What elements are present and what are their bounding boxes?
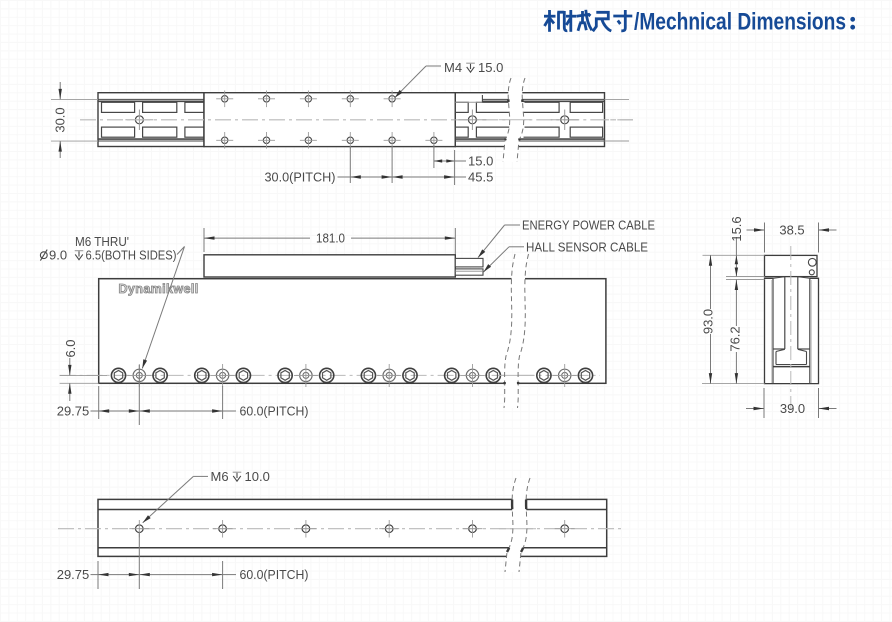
- svg-text:15.6: 15.6: [729, 216, 744, 241]
- svg-text:6.0: 6.0: [63, 339, 78, 357]
- svg-text:ENERGY POWER CABLE: ENERGY POWER CABLE: [522, 218, 655, 233]
- svg-text:39.0: 39.0: [780, 401, 805, 416]
- svg-text:93.0: 93.0: [701, 309, 716, 334]
- svg-text:38.5: 38.5: [779, 223, 804, 238]
- svg-text:30.0(PITCH): 30.0(PITCH): [265, 170, 336, 185]
- svg-text:/Mechnical Dimensions: /Mechnical Dimensions: [634, 9, 846, 36]
- svg-text:M4: M4: [444, 60, 462, 75]
- svg-text:181.0: 181.0: [316, 231, 345, 246]
- svg-text:30.0: 30.0: [53, 107, 68, 132]
- svg-text:HALL SENSOR CABLE: HALL SENSOR CABLE: [526, 239, 648, 254]
- svg-text:6.5(BOTH SIDES): 6.5(BOTH SIDES): [86, 248, 177, 263]
- svg-text:60.0(PITCH): 60.0(PITCH): [240, 567, 309, 582]
- svg-text:15.0: 15.0: [468, 154, 493, 169]
- svg-text:45.5: 45.5: [468, 170, 493, 185]
- svg-text:15.0: 15.0: [478, 60, 503, 75]
- svg-text:76.2: 76.2: [728, 326, 743, 351]
- svg-text:9.0: 9.0: [49, 248, 67, 263]
- svg-text:29.75: 29.75: [57, 567, 90, 582]
- svg-text:60.0(PITCH): 60.0(PITCH): [240, 404, 309, 419]
- svg-text:10.0: 10.0: [245, 469, 270, 484]
- svg-text:M6: M6: [211, 469, 229, 484]
- svg-text:29.75: 29.75: [57, 404, 90, 419]
- svg-text:Dynamikwell: Dynamikwell: [119, 282, 199, 296]
